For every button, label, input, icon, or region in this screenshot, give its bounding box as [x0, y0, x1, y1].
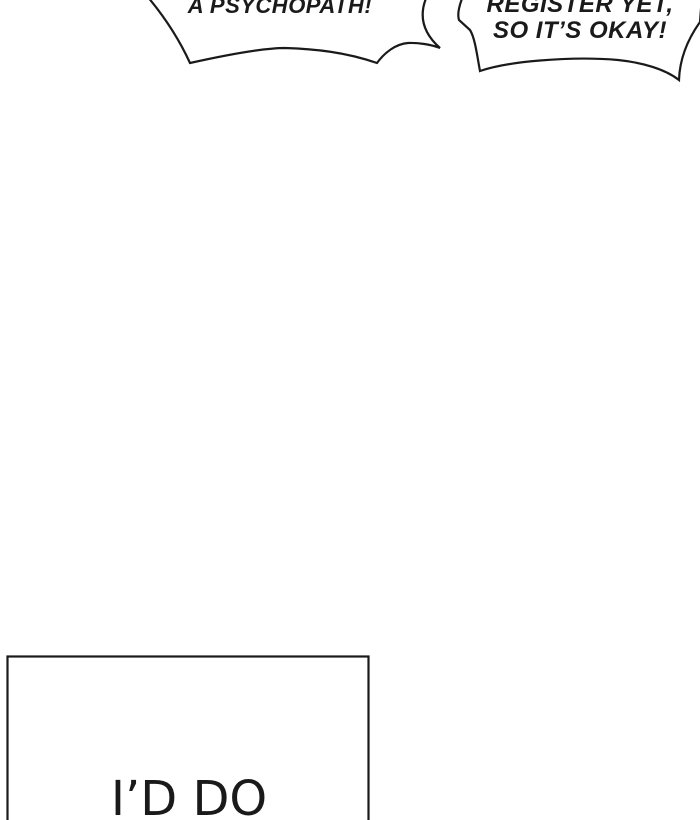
speech-bubble-left-text: A PSYCHOPATH!: [178, 0, 382, 17]
speech-bubble-right-line1: REGISTER YET,: [462, 0, 698, 18]
panel-dialogue-text: I’D DO: [87, 775, 291, 820]
speech-bubble-right-text: REGISTER YET, SO IT’S OKAY!: [462, 0, 698, 44]
comic-page: A PSYCHOPATH! REGISTER YET, SO IT’S OKAY…: [0, 0, 700, 820]
comic-art-layer: [0, 0, 700, 820]
speech-bubble-right-line2: SO IT’S OKAY!: [462, 18, 698, 44]
